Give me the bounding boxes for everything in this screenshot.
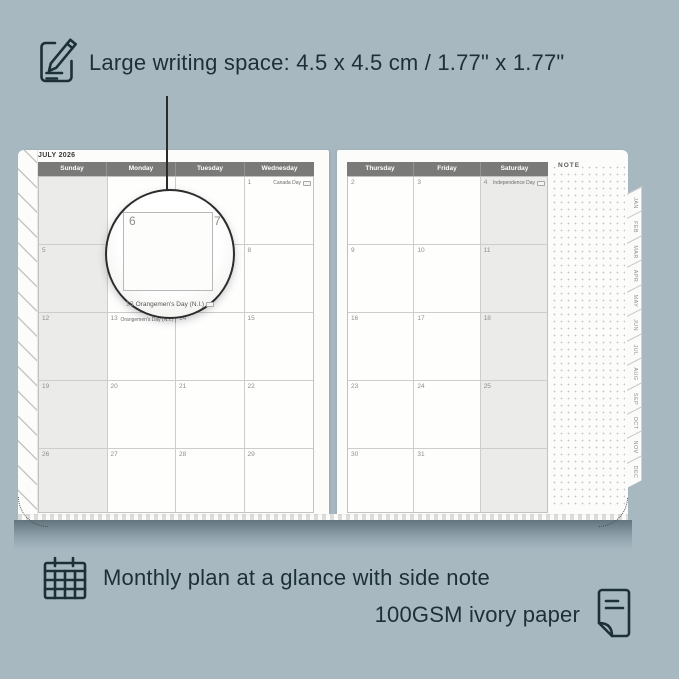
day-number: 25 — [484, 383, 491, 390]
calendar-week-row: 23 24 25 — [348, 381, 547, 449]
day-cell: 20 — [108, 381, 177, 449]
day-number: 29 — [248, 451, 255, 458]
day-cell: 11 — [481, 245, 547, 313]
day-cell: 13 Orangemen's Day (N.I.) — [108, 313, 177, 381]
day-number: 21 — [179, 383, 186, 390]
calendar-week-row: 30 31 — [348, 449, 547, 512]
day-number: 20 — [111, 383, 118, 390]
day-number: 17 — [417, 315, 424, 322]
pointer-line — [166, 96, 168, 191]
day-number: 22 — [248, 383, 255, 390]
day-number: 4 — [484, 179, 488, 186]
day-number: 27 — [111, 451, 118, 458]
calendar-week-row: 19 20 21 22 — [39, 381, 313, 449]
top-caption: Large writing space: 4.5 x 4.5 cm / 1.77… — [89, 50, 564, 76]
pencil-note-icon — [36, 33, 82, 92]
day-cell: 15 — [245, 313, 314, 381]
day-cell: 26 — [39, 449, 108, 512]
day-number: 18 — [484, 315, 491, 322]
day-cell: 22 — [245, 381, 314, 449]
day-number: 10 — [417, 247, 424, 254]
day-cell — [481, 449, 547, 512]
day-cell: 19 — [39, 381, 108, 449]
day-cell: 18 — [481, 313, 547, 381]
day-cell: 17 — [414, 313, 480, 381]
day-cell: 2 — [348, 177, 414, 245]
weekday-header: Thursday — [347, 162, 414, 176]
weekday-header: Wednesday — [245, 162, 314, 176]
calendar-grid-icon — [42, 556, 90, 607]
day-cell: 24 — [414, 381, 480, 449]
magnified-holiday-label: 13 Orangemen's Day (N.I.) — [107, 301, 233, 308]
weekday-header: Friday — [414, 162, 481, 176]
flag-icon — [303, 181, 311, 186]
day-cell: 29 — [245, 449, 314, 512]
day-cell: 16 — [348, 313, 414, 381]
calendar-week-row: 12 13 Orangemen's Day (N.I.) 14 15 — [39, 313, 313, 381]
left-tab-edge-strip — [18, 150, 38, 514]
calendar-week-row: 9 10 11 — [348, 245, 547, 313]
day-cell: 10 — [414, 245, 480, 313]
day-number: 9 — [351, 247, 355, 254]
day-cell: 30 — [348, 449, 414, 512]
day-cell: 28 — [176, 449, 245, 512]
month-title: JULY 2026 — [38, 152, 75, 159]
day-number: 31 — [417, 451, 424, 458]
bottom-caption-line2: 100GSM ivory paper — [300, 602, 580, 628]
day-number: 11 — [484, 247, 491, 254]
calendar-week-row: 16 17 18 — [348, 313, 547, 381]
weekday-header: Saturday — [481, 162, 548, 176]
day-number: 16 — [351, 315, 358, 322]
day-cell: 8 — [245, 245, 314, 313]
book-shadow — [14, 520, 632, 550]
day-cell: 31 — [414, 449, 480, 512]
day-cell: 14 — [176, 313, 245, 381]
day-cell: 23 — [348, 381, 414, 449]
product-image: Large writing space: 4.5 x 4.5 cm / 1.77… — [0, 0, 679, 679]
day-cell: 4 Independence Day — [481, 177, 547, 245]
weekday-header: Sunday — [38, 162, 107, 176]
magnified-day-number: 7 — [214, 214, 221, 228]
weekday-header: Tuesday — [176, 162, 245, 176]
day-number: 23 — [351, 383, 358, 390]
paper-sheet-icon — [593, 586, 635, 645]
day-number: 26 — [42, 451, 49, 458]
weekday-header-row: Thursday Friday Saturday — [347, 162, 548, 176]
day-number: 24 — [417, 383, 424, 390]
day-cell: 5 — [39, 245, 108, 313]
holiday-label: Independence Day — [493, 180, 545, 186]
right-calendar-page: Thursday Friday Saturday 2 3 4 Independe… — [337, 150, 628, 514]
magnified-writing-cell — [123, 212, 213, 291]
flag-icon — [537, 181, 545, 186]
magnifier-circle: 6 7 13 Orangemen's Day (N.I.) — [105, 189, 235, 319]
month-tab-dec: DEC — [627, 459, 642, 484]
day-number: 3 — [417, 179, 421, 186]
day-cell — [39, 177, 108, 245]
holiday-label: Canada Day — [273, 180, 311, 186]
day-number: 8 — [248, 247, 252, 254]
day-cell: 27 — [108, 449, 177, 512]
day-number: 5 — [42, 247, 46, 254]
flag-icon — [206, 302, 214, 307]
day-cell: 3 — [414, 177, 480, 245]
day-cell: 25 — [481, 381, 547, 449]
day-number: 1 — [248, 179, 252, 186]
day-cell: 12 — [39, 313, 108, 381]
calendar-week-row: 26 27 28 29 — [39, 449, 313, 512]
day-number: 2 — [351, 179, 355, 186]
day-number: 12 — [42, 315, 49, 322]
note-label: NOTE — [558, 162, 582, 169]
magnified-day-number: 6 — [129, 214, 136, 228]
day-number: 13 — [111, 315, 118, 322]
bottom-caption-line1: Monthly plan at a glance with side note — [103, 565, 490, 591]
day-cell: 1 Canada Day — [245, 177, 314, 245]
right-month-grid: 2 3 4 Independence Day 9 10 11 16 17 18 … — [347, 176, 548, 513]
day-number: 19 — [42, 383, 49, 390]
day-number: 28 — [179, 451, 186, 458]
day-number: 30 — [351, 451, 358, 458]
note-dot-grid — [551, 164, 625, 508]
weekday-header-row: Sunday Monday Tuesday Wednesday — [38, 162, 314, 176]
calendar-week-row: 2 3 4 Independence Day — [348, 177, 547, 245]
day-cell: 21 — [176, 381, 245, 449]
day-cell: 9 — [348, 245, 414, 313]
day-number: 15 — [248, 315, 255, 322]
